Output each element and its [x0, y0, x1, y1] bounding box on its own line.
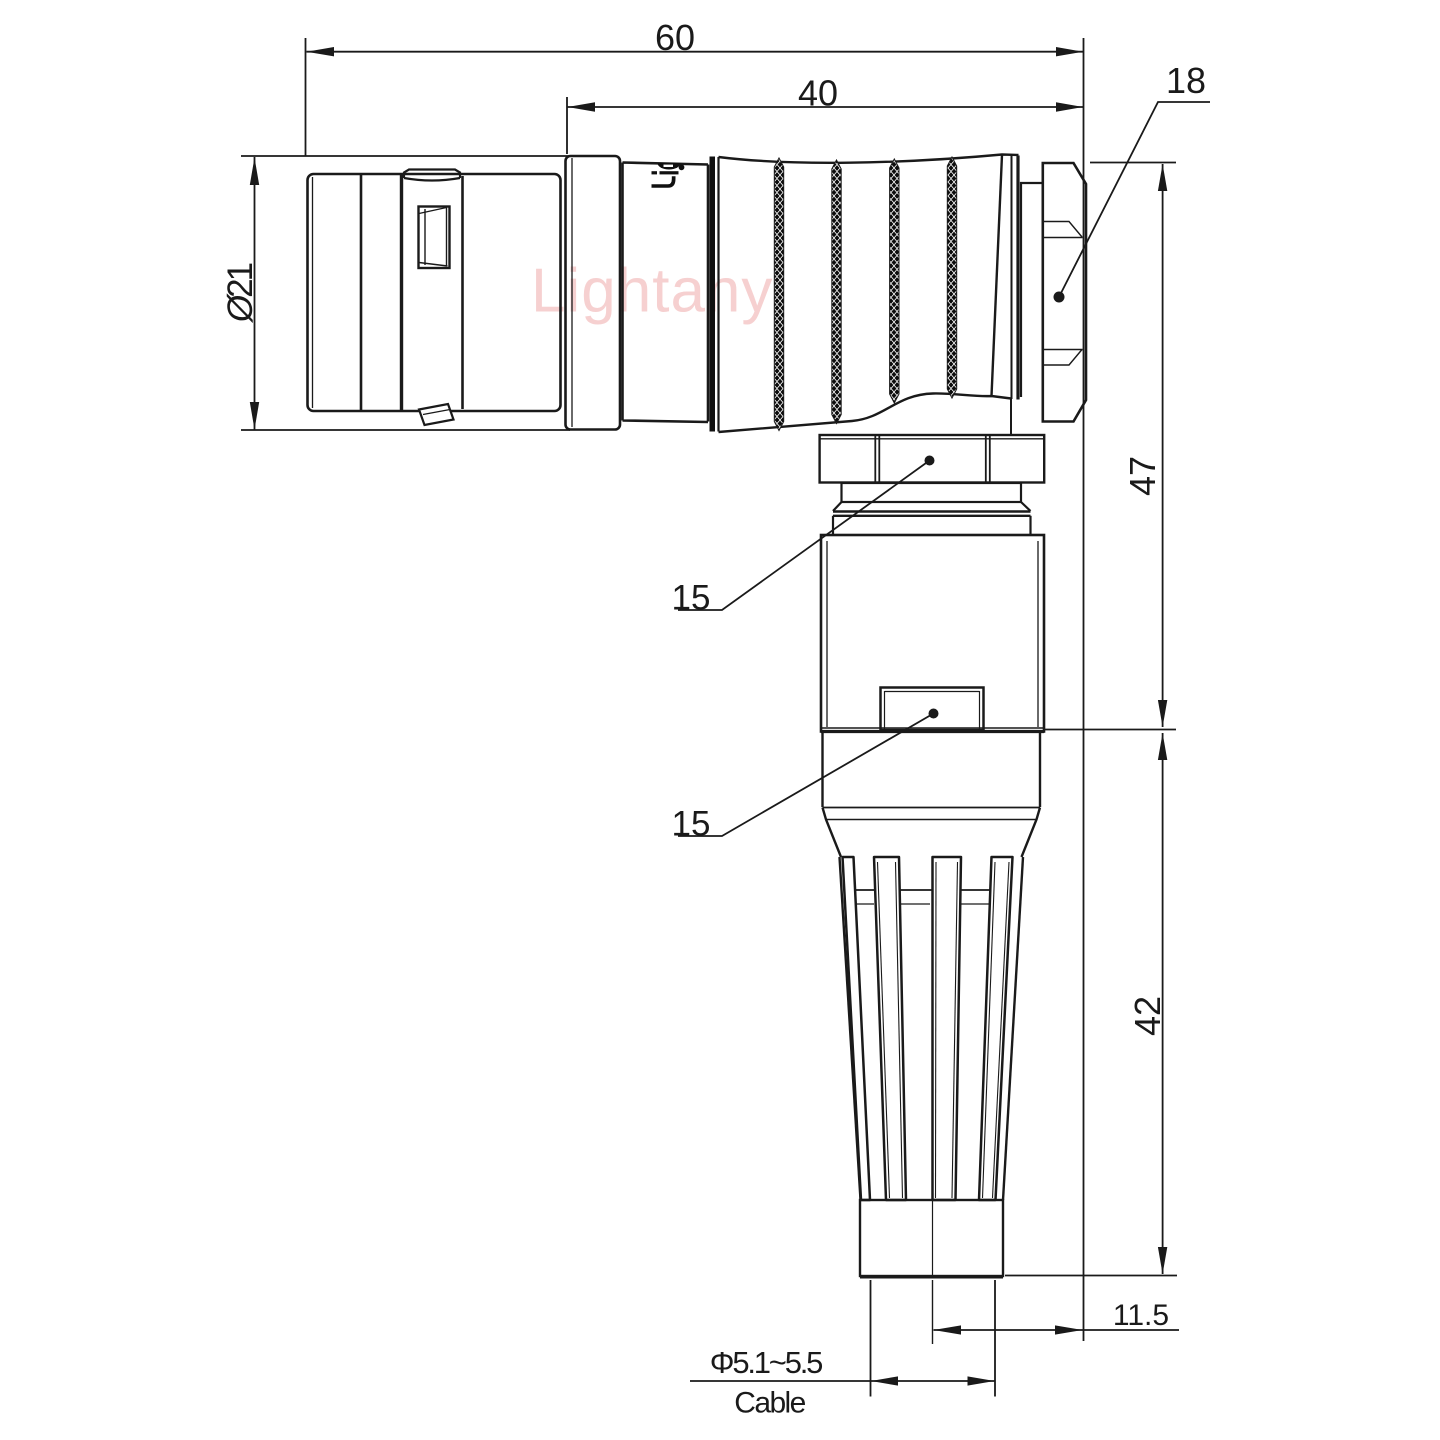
svg-text:Φ5.1~5.5: Φ5.1~5.5 — [710, 1345, 822, 1380]
svg-text:11.5: 11.5 — [1113, 1299, 1169, 1332]
svg-text:15: 15 — [672, 579, 711, 618]
svg-text:Lightany: Lightany — [531, 257, 773, 326]
svg-text:Cable: Cable — [734, 1387, 805, 1420]
svg-text:15: 15 — [672, 805, 711, 844]
svg-text:47: 47 — [1122, 456, 1163, 496]
svg-text:18: 18 — [1166, 60, 1206, 101]
svg-text:Ø21: Ø21 — [221, 263, 260, 323]
svg-text:60: 60 — [655, 17, 695, 58]
svg-text:42: 42 — [1127, 996, 1168, 1036]
svg-text:40: 40 — [798, 73, 838, 114]
